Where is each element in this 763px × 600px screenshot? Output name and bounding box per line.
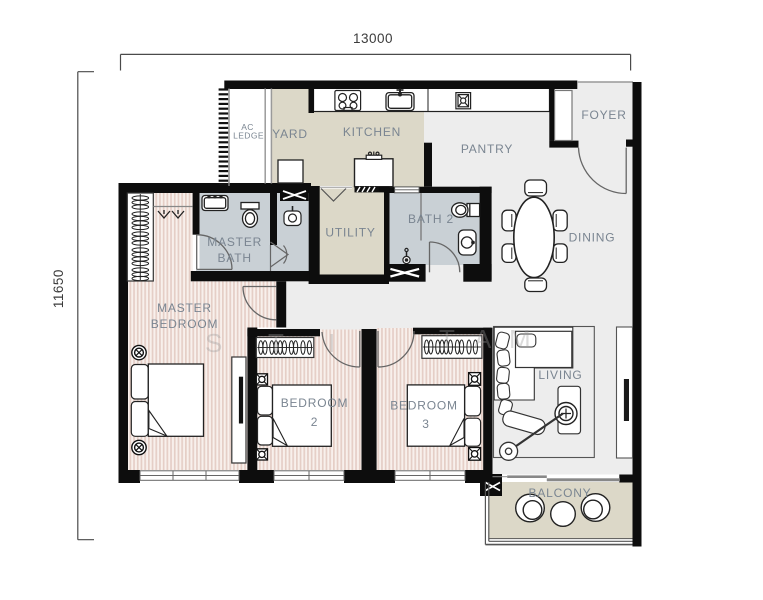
svg-text:LIVING: LIVING xyxy=(538,368,582,382)
svg-text:A: A xyxy=(474,324,492,354)
svg-text:11650: 11650 xyxy=(51,269,66,308)
svg-text:KITCHEN: KITCHEN xyxy=(343,125,401,139)
svg-text:BEDROOM: BEDROOM xyxy=(281,396,349,410)
svg-text:S: S xyxy=(205,328,222,358)
svg-text:2: 2 xyxy=(311,415,318,429)
svg-text:PANTRY: PANTRY xyxy=(461,142,513,156)
svg-text:DINING: DINING xyxy=(569,231,616,245)
svg-text:13000: 13000 xyxy=(353,31,393,46)
svg-text:BATH 2: BATH 2 xyxy=(408,212,454,226)
svg-text:3: 3 xyxy=(422,417,429,431)
svg-text:UTILITY: UTILITY xyxy=(325,226,375,240)
svg-text:M: M xyxy=(509,324,531,354)
svg-text:BALCONY: BALCONY xyxy=(529,486,592,500)
svg-text:I: I xyxy=(328,328,335,358)
svg-text:YARD: YARD xyxy=(272,127,308,141)
svg-text:LEDGE: LEDGE xyxy=(233,131,264,141)
svg-text:T: T xyxy=(268,328,284,358)
svg-text:MASTER: MASTER xyxy=(207,235,262,249)
svg-text:MASTER: MASTER xyxy=(157,301,212,315)
svg-text:BATH: BATH xyxy=(218,251,252,265)
svg-text:FOYER: FOYER xyxy=(581,108,626,122)
svg-text:T: T xyxy=(439,324,455,354)
svg-text:BEDROOM: BEDROOM xyxy=(390,399,458,413)
